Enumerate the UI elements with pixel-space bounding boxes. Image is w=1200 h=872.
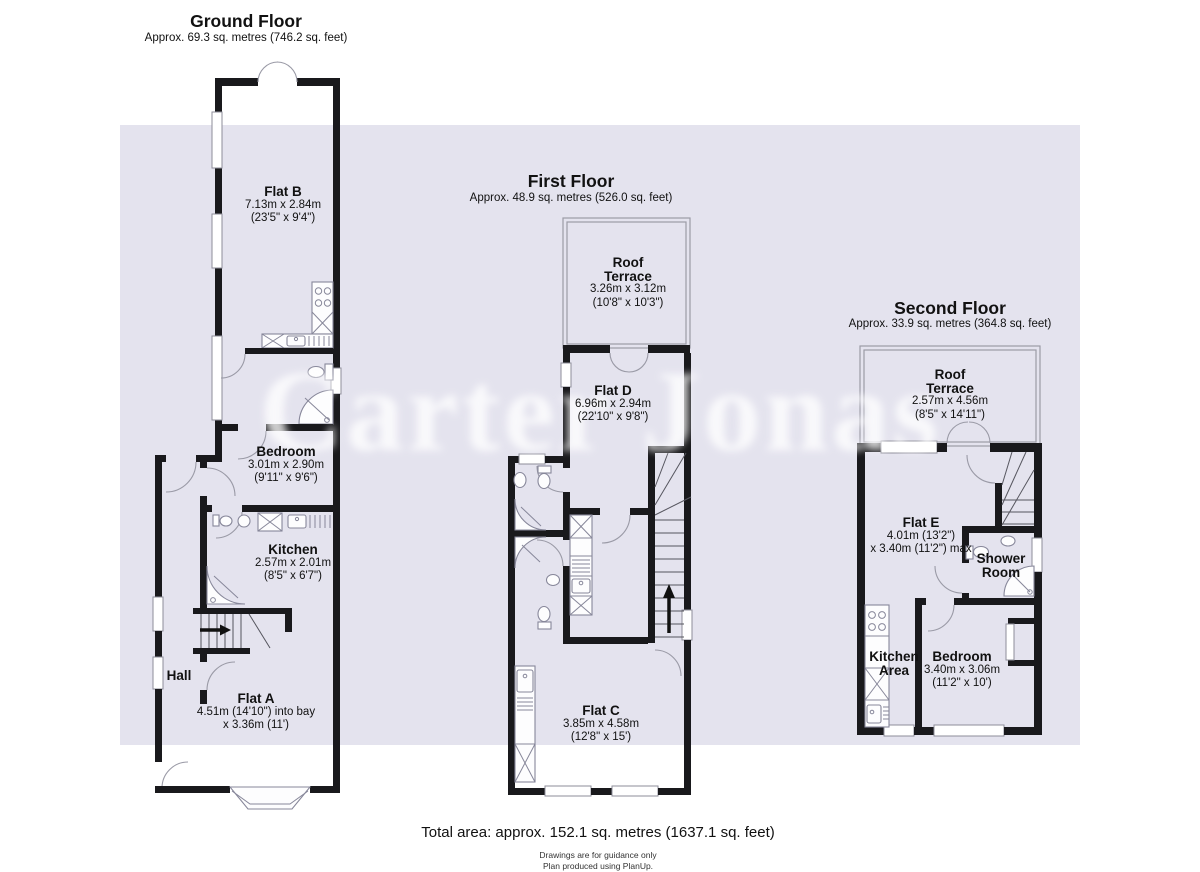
door-arc — [928, 605, 954, 631]
room-label-roof-terrace-2f: Roof Terrace 2.57m x 4.56m (8'5" x 14'11… — [912, 368, 988, 422]
second-floor-subtitle: Approx. 33.9 sq. metres (364.8 sq. feet) — [849, 318, 1052, 330]
window-icon — [612, 786, 658, 796]
first-floor-subtitle: Approx. 48.9 sq. metres (526.0 sq. feet) — [470, 192, 673, 204]
basin-icon — [547, 575, 560, 586]
window-icon — [153, 657, 163, 689]
window-icon — [881, 441, 937, 453]
window-icon — [212, 336, 222, 420]
kitchen-fixtures — [213, 513, 330, 531]
room-label-hall: Hall — [167, 669, 192, 683]
bay-window-icon — [230, 787, 310, 809]
toilet-icon — [538, 466, 551, 489]
window-icon — [682, 610, 692, 640]
door-arc — [935, 566, 962, 593]
door-arc — [166, 462, 196, 492]
room-label-bedroom-2f: Bedroom 3.40m x 3.06m (11'2" x 10') — [924, 650, 1000, 691]
stairs-up-icon — [193, 608, 292, 654]
window-icon — [1006, 624, 1014, 660]
room-label-flat-b: Flat B 7.13m x 2.84m (23'5" x 9'4") — [245, 185, 321, 226]
total-area-text: Total area: approx. 152.1 sq. metres (16… — [421, 824, 775, 841]
entrance-door-arc — [162, 762, 188, 788]
double-door-icon — [258, 62, 297, 82]
toilet-icon — [220, 516, 232, 526]
window-icon — [212, 112, 222, 168]
sink-icon — [867, 705, 881, 723]
room-label-kitchen-gf: Kitchen 2.57m x 2.01m (8'5" x 6'7") — [255, 543, 331, 584]
basin-icon — [514, 473, 526, 488]
door-arc — [207, 468, 235, 496]
door-arc — [655, 650, 681, 676]
floorplan-page: Carter Jonas Ground Floor Approx. 69.3 s… — [0, 0, 1200, 872]
first-floor-title: First Floor — [528, 171, 615, 192]
sink-icon — [262, 334, 333, 348]
shower-icon — [207, 566, 245, 604]
double-door-icon — [610, 353, 648, 372]
basin-icon — [1001, 536, 1015, 546]
ground-floor-title: Ground Floor — [190, 11, 302, 32]
door-arc — [602, 515, 630, 543]
room-label-bedroom-gf: Bedroom 3.01m x 2.90m (9'11" x 9'6") — [248, 445, 324, 486]
room-label-flat-e: Flat E 4.01m (13'2") x 3.40m (11'2") max — [870, 516, 971, 557]
basin-icon — [238, 515, 250, 527]
kitchen-counter-icon — [515, 666, 535, 782]
window-icon — [519, 454, 545, 464]
room-label-flat-d: Flat D 6.96m x 2.94m (22'10" x 9'8") — [575, 384, 651, 425]
stairs-icon — [967, 452, 1034, 533]
shower-icon — [515, 537, 546, 568]
door-arc — [221, 354, 245, 378]
door-arc — [537, 540, 563, 566]
door-arc — [207, 662, 235, 690]
room-label-roof-terrace-1f: Roof Terrace 3.26m x 3.12m (10'8" x 10'3… — [590, 256, 666, 310]
window-icon — [561, 363, 571, 387]
room-label-flat-a: Flat A 4.51m (14'10") into bay x 3.36m (… — [197, 692, 315, 733]
shower-icon — [299, 390, 333, 424]
second-floor-title: Second Floor — [894, 298, 1006, 319]
planup-note: Plan produced using PlanUp. — [543, 861, 653, 871]
window-icon — [934, 725, 1004, 736]
double-door-icon — [947, 422, 990, 443]
room-label-flat-c: Flat C 3.85m x 4.58m (12'8" x 15') — [563, 704, 639, 745]
toilet-icon — [538, 607, 551, 630]
shower-icon — [515, 499, 546, 530]
hob-icon — [312, 282, 333, 334]
window-icon — [212, 214, 222, 268]
toilet-icon — [308, 364, 333, 380]
window-icon — [545, 786, 591, 796]
guidance-note: Drawings are for guidance only — [539, 850, 656, 860]
window-icon — [153, 597, 163, 631]
room-label-kitchen-area: Kitchen Area — [869, 650, 919, 677]
sink-icon — [517, 670, 533, 692]
room-label-shower-room: Shower Room — [977, 552, 1026, 579]
kitchen-counter-icon — [570, 515, 592, 615]
door-arc — [967, 455, 995, 483]
ground-floor-subtitle: Approx. 69.3 sq. metres (746.2 sq. feet) — [145, 32, 348, 44]
